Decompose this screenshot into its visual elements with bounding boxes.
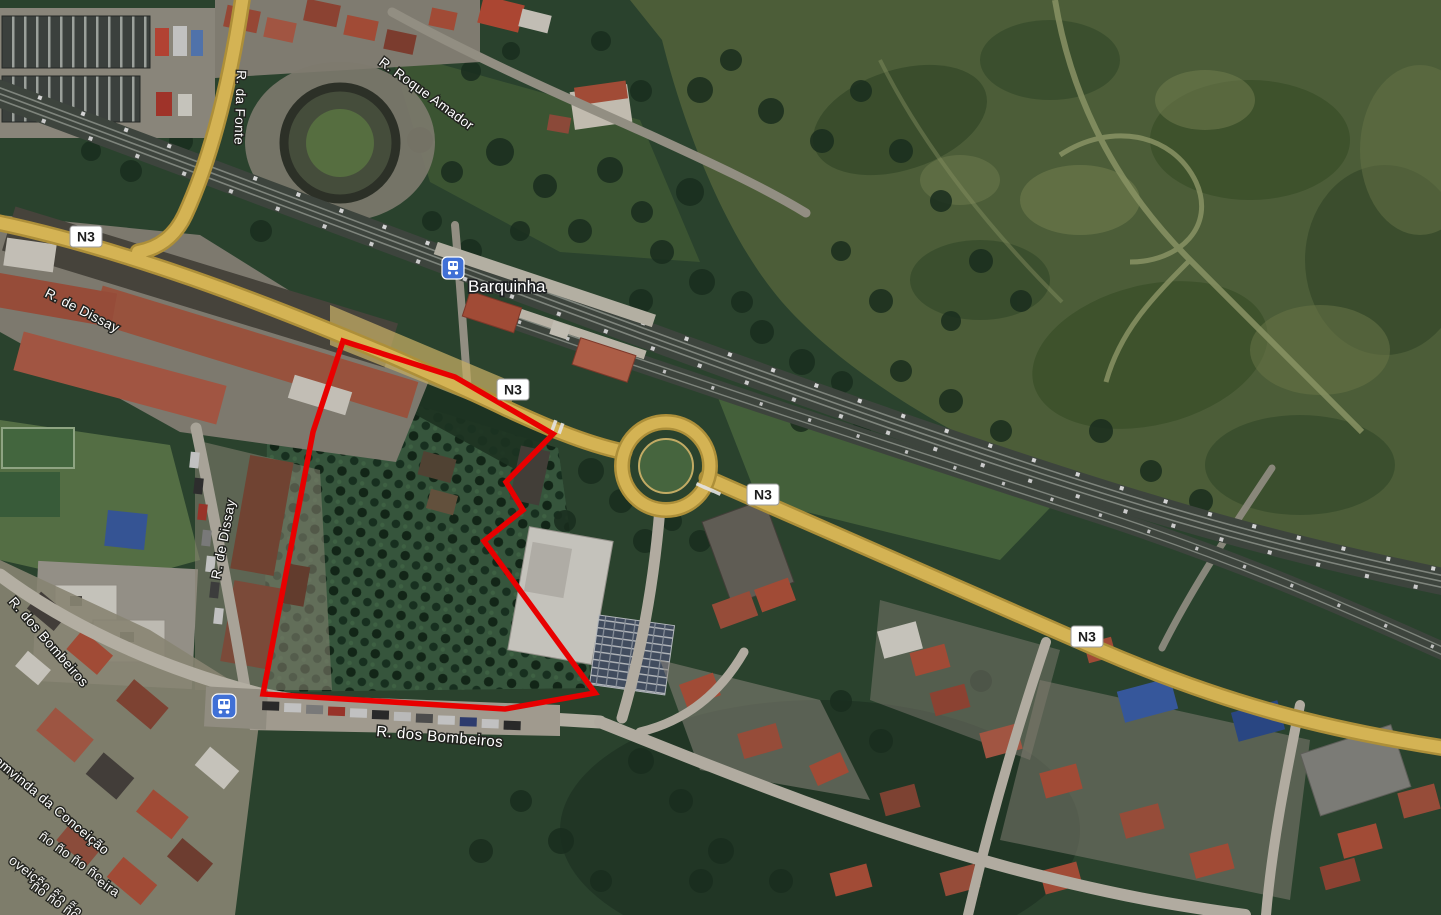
route-shield-n3-west: N3	[70, 226, 102, 247]
texture-overlay	[0, 0, 1441, 915]
route-shield-label: N3	[1078, 629, 1096, 645]
station-label[interactable]: Barquinha	[468, 277, 546, 296]
route-shield-label: N3	[504, 382, 522, 398]
route-shield-n3-east: N3	[1071, 626, 1103, 647]
route-shield-n3-roundabout: N3	[747, 484, 779, 505]
route-shield-n3-station: N3	[497, 379, 529, 400]
street-label-fonte: R. da Fonte	[231, 70, 249, 145]
route-shield-label: N3	[77, 229, 95, 245]
map-viewport[interactable]: Barquinha N3 N3 N3 N3 R. da Fonte R. Roq…	[0, 0, 1441, 915]
satellite-map[interactable]: Barquinha N3 N3 N3 N3 R. da Fonte R. Roq…	[0, 0, 1441, 915]
route-shield-label: N3	[754, 487, 772, 503]
bus-stop-marker[interactable]	[212, 694, 236, 718]
